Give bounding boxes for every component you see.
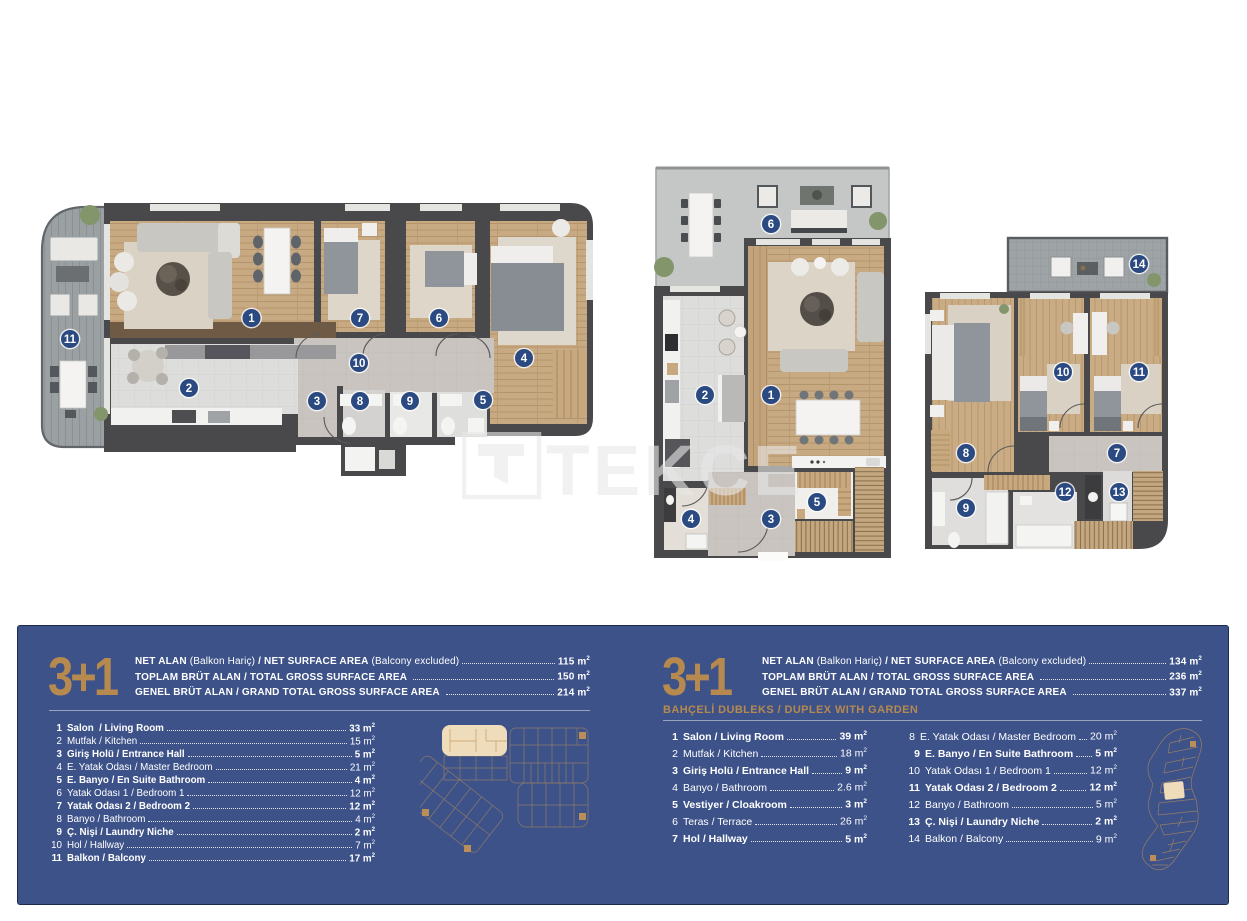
svg-text:6: 6 — [768, 219, 774, 231]
svg-text:TEKCE: TEKCE — [546, 432, 804, 500]
svg-text:14: 14 — [1133, 259, 1146, 271]
svg-text:9: 9 — [963, 503, 969, 515]
svg-text:9: 9 — [407, 396, 413, 408]
svg-text:13: 13 — [1113, 487, 1126, 499]
svg-text:4: 4 — [521, 353, 528, 365]
svg-text:6: 6 — [436, 313, 442, 325]
svg-text:3: 3 — [314, 396, 320, 408]
svg-text:10: 10 — [1057, 367, 1070, 379]
svg-text:1: 1 — [768, 390, 775, 402]
svg-text:10: 10 — [353, 358, 366, 370]
svg-text:3: 3 — [768, 514, 774, 526]
svg-text:4: 4 — [688, 514, 695, 526]
svg-text:12: 12 — [1059, 487, 1072, 499]
svg-text:2: 2 — [702, 390, 708, 402]
svg-text:8: 8 — [357, 396, 364, 408]
svg-text:2: 2 — [186, 383, 192, 395]
svg-text:8: 8 — [963, 448, 970, 460]
svg-text:11: 11 — [64, 334, 77, 346]
svg-text:1: 1 — [248, 313, 255, 325]
svg-text:7: 7 — [357, 313, 363, 325]
svg-text:5: 5 — [480, 395, 487, 407]
svg-text:11: 11 — [1133, 367, 1146, 379]
svg-text:7: 7 — [1114, 448, 1120, 460]
